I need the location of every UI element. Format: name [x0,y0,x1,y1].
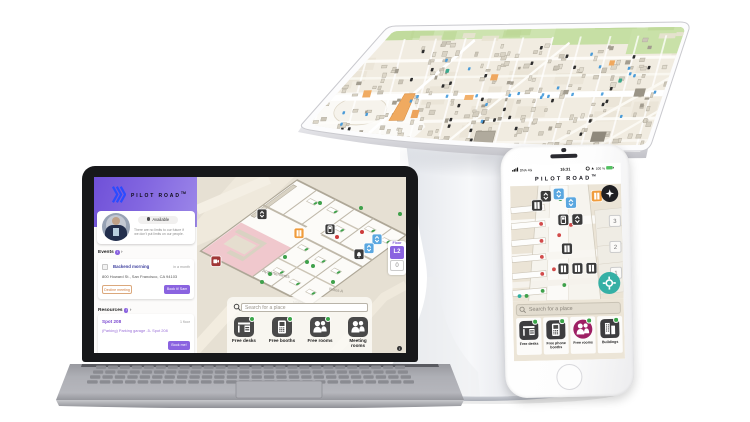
svg-text:4G: 4G [528,168,533,172]
svg-text:DNA: DNA [520,168,528,172]
svg-text:100 %: 100 % [596,167,606,171]
svg-text:16:31: 16:31 [560,166,571,171]
